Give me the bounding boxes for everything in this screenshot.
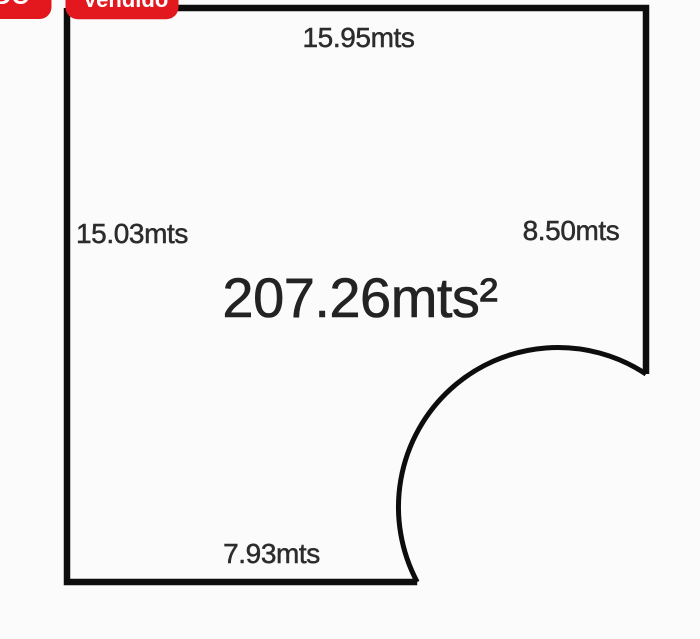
- svg-text:15.03mts: 15.03mts: [76, 218, 188, 249]
- svg-text:VENDIDO: VENDIDO: [0, 0, 30, 10]
- svg-text:8.50mts: 8.50mts: [523, 215, 620, 246]
- svg-text:7.93mts: 7.93mts: [223, 538, 320, 569]
- svg-text:Vendido: Vendido: [83, 0, 169, 12]
- svg-text:207.26mts²: 207.26mts²: [222, 266, 497, 329]
- svg-text:15.95mts: 15.95mts: [303, 22, 415, 53]
